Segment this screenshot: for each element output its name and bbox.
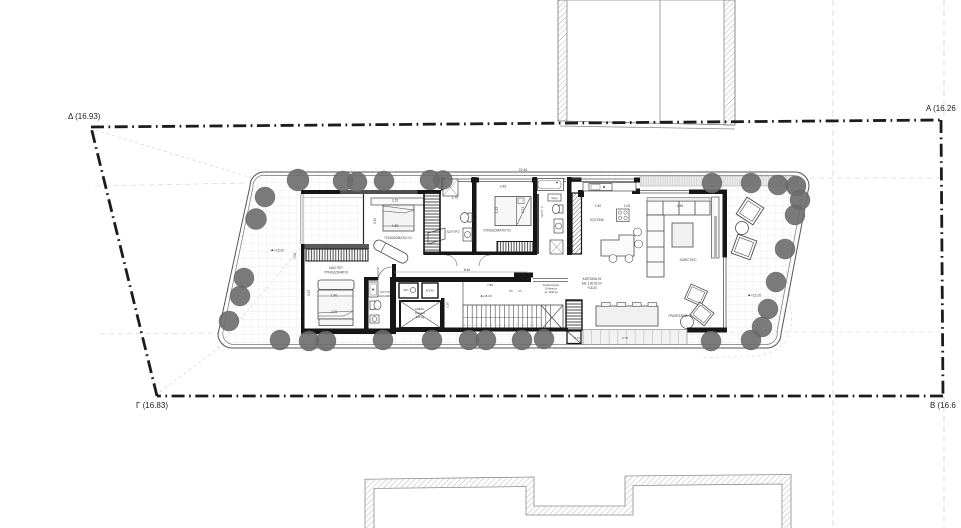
- svg-text:ΠΛ: ΠΛ: [509, 289, 513, 293]
- svg-text:4.46: 4.46: [677, 204, 683, 208]
- svg-text:8.46: 8.46: [464, 268, 470, 272]
- svg-text:1.80: 1.80: [595, 204, 601, 208]
- svg-text:10 θέσεων: 10 θέσεων: [545, 287, 558, 291]
- svg-text:1.06: 1.06: [624, 204, 630, 208]
- svg-text:2.20: 2.20: [446, 302, 450, 308]
- svg-text:ΚΑΘΙΣΤΙΚΟ: ΚΑΘΙΣΤΙΚΟ: [680, 258, 697, 262]
- svg-text:γκ: 1130 kg: γκ: 1130 kg: [544, 290, 558, 294]
- svg-text:ΚΑΤΟΙΚΙΑ 01: ΚΑΤΟΙΚΙΑ 01: [583, 277, 602, 281]
- svg-text:1.43: 1.43: [495, 207, 499, 213]
- svg-text:ΥΠΝΟΔΩΜΑΤΙΟ 02: ΥΠΝΟΔΩΜΑΤΙΟ 02: [483, 229, 511, 233]
- svg-text:ΛΟΥΤ. 2: ΛΟΥΤ. 2: [540, 206, 544, 217]
- svg-text:2.00: 2.00: [331, 310, 338, 314]
- svg-text:ΜΑΣΤΕΡ: ΜΑΣΤΕΡ: [329, 266, 343, 270]
- svg-text:3.15: 3.15: [373, 218, 377, 224]
- svg-text:+15.20: +15.20: [587, 286, 597, 290]
- svg-text:+15.20: +15.20: [482, 294, 492, 298]
- svg-text:+15.20: +15.20: [751, 294, 761, 298]
- svg-text:Δ (16.93): Δ (16.93): [68, 112, 101, 121]
- svg-text:ΣΤ: ΣΤ: [518, 289, 522, 293]
- svg-text:ΥΠΝΟΔΩΜΑΤΙΟ: ΥΠΝΟΔΩΜΑΤΙΟ: [324, 271, 349, 275]
- svg-text:ΥΠΝΟΔΩΜΑΤΙΟ 01: ΥΠΝΟΔΩΜΑΤΙΟ 01: [384, 236, 412, 240]
- svg-text:4 5 6 7 8 9 10 11 12 13 14 15: 4 5 6 7 8 9 10 11 12 13 14 15: [464, 325, 545, 327]
- svg-text:ΕΑ: 130.62 m²: ΕΑ: 130.62 m²: [582, 282, 602, 286]
- svg-text:ΛΟΥΤΡΟ: ΛΟΥΤΡΟ: [446, 230, 460, 234]
- svg-text:2.21: 2.21: [521, 207, 525, 213]
- svg-text:2.15: 2.15: [392, 199, 399, 203]
- svg-text:Ανελκυστήρας: Ανελκυστήρας: [543, 283, 560, 287]
- svg-text:7.08: 7.08: [293, 253, 297, 259]
- svg-text:1.80: 1.80: [331, 294, 338, 298]
- svg-text:0.70: 0.70: [574, 336, 580, 340]
- svg-text:630 kg: 630 kg: [416, 315, 425, 319]
- svg-text:ΤΡΑΠΕΖΑΡΙΑ: ΤΡΑΠΕΖΑΡΙΑ: [668, 314, 688, 318]
- svg-text:+15.20: +15.20: [274, 249, 284, 253]
- svg-text:A (16.26: A (16.26: [926, 104, 956, 113]
- svg-text:ΑΠΟΘ.: ΑΠΟΘ.: [425, 289, 434, 293]
- svg-text:1.88: 1.88: [392, 224, 399, 228]
- svg-text:ΚΟΥΖΙΝΑ: ΚΟΥΖΙΝΑ: [590, 218, 605, 222]
- svg-text:2.46: 2.46: [500, 185, 507, 189]
- svg-text:Γ (16.83): Γ (16.83): [136, 401, 168, 410]
- svg-text:6.75: 6.75: [622, 336, 628, 340]
- svg-text:7.80: 7.80: [487, 283, 493, 287]
- svg-text:B (16.6: B (16.6: [930, 401, 956, 410]
- svg-text:Θερμ: Θερμ: [551, 196, 558, 200]
- svg-text:3.05: 3.05: [307, 290, 311, 296]
- svg-text:1.70: 1.70: [452, 196, 459, 200]
- svg-text:22.46: 22.46: [519, 168, 528, 172]
- svg-text:WC: WC: [404, 288, 410, 292]
